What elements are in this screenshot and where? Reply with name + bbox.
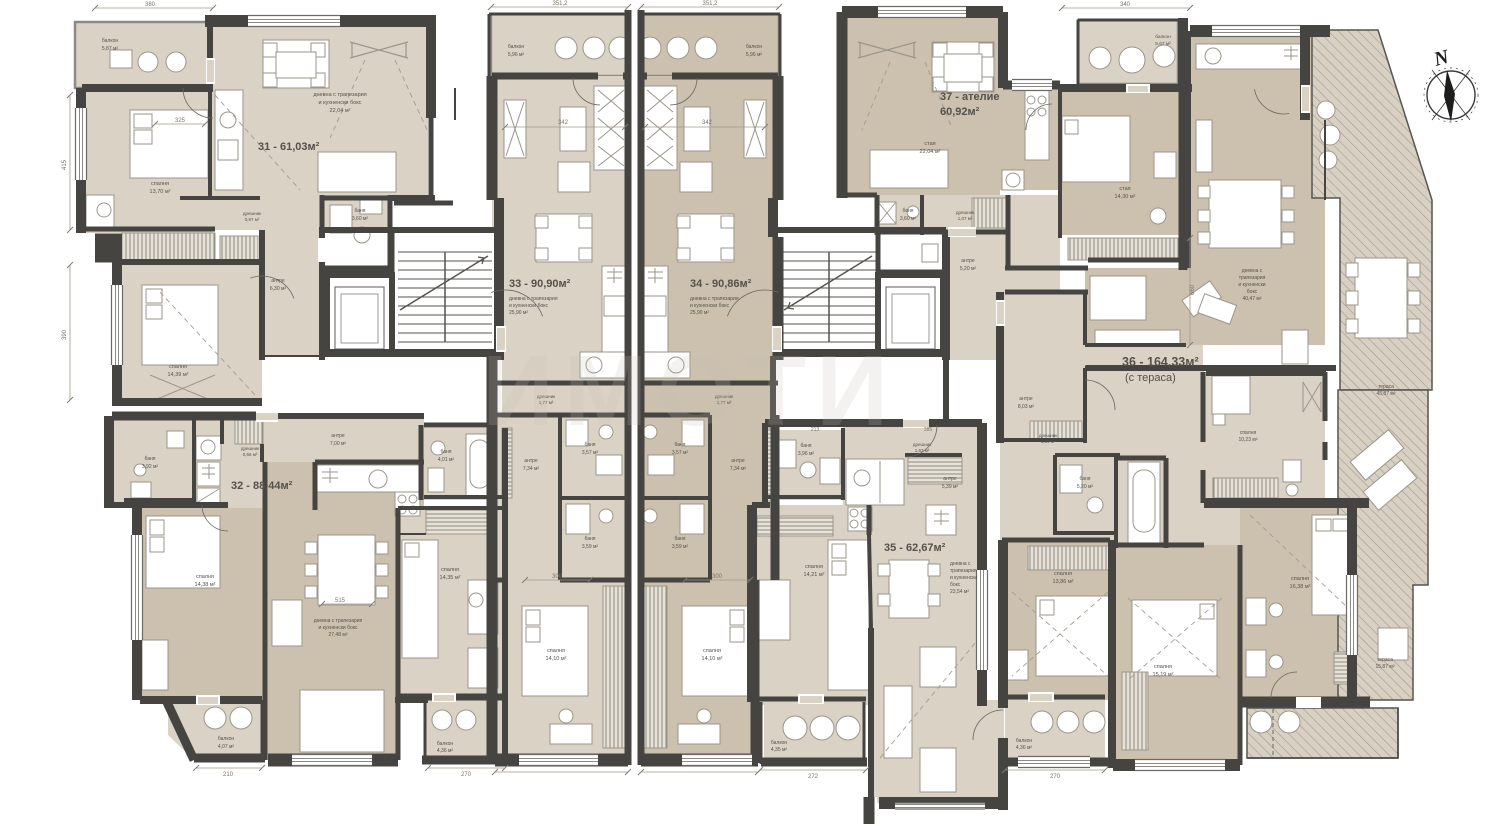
svg-text:60,92м²: 60,92м² [940, 106, 980, 118]
svg-text:ИМОТИ: ИМОТИ [482, 335, 898, 447]
svg-text:дневна с трапезария: дневна с трапезария [690, 296, 739, 302]
svg-text:и кухненски бокс: и кухненски бокс [319, 100, 362, 106]
svg-text:270: 270 [461, 772, 472, 778]
svg-text:3,92 м²: 3,92 м² [142, 464, 159, 470]
svg-text:1,53 м²: 1,53 м² [915, 448, 930, 453]
svg-text:балкон: балкон [771, 740, 787, 746]
svg-text:баня: баня [675, 536, 686, 542]
svg-text:спалня: спалня [805, 564, 823, 570]
svg-text:3,60 м²: 3,60 м² [900, 216, 917, 222]
svg-text:14,39 м²: 14,39 м² [168, 372, 189, 378]
svg-text:5,20 м²: 5,20 м² [960, 266, 977, 272]
svg-text:22,04 м²: 22,04 м² [920, 149, 941, 155]
svg-text:385: 385 [924, 427, 933, 433]
svg-text:272: 272 [808, 774, 819, 780]
svg-text:15,19 м²: 15,19 м² [1153, 672, 1174, 678]
svg-text:и кухненски бокс: и кухненски бокс [690, 303, 729, 309]
svg-text:380: 380 [145, 2, 156, 8]
svg-text:спалня: спалня [151, 181, 169, 187]
svg-text:300: 300 [712, 574, 723, 580]
svg-text:7,00 м²: 7,00 м² [330, 441, 347, 447]
svg-text:45,87 м²: 45,87 м² [1376, 391, 1395, 397]
svg-text:дневна с трапезария: дневна с трапезария [314, 618, 363, 624]
svg-text:6,30 м²: 6,30 м² [270, 286, 287, 292]
svg-text:антре: антре [271, 278, 285, 284]
svg-text:дневна с: дневна с [950, 561, 971, 567]
svg-text:0,97 м²: 0,97 м² [245, 217, 260, 222]
svg-text:40,47 м²: 40,47 м² [1242, 296, 1261, 302]
svg-text:антре: антре [943, 476, 957, 482]
svg-text:15,87 м²: 15,87 м² [1375, 664, 1394, 670]
svg-text:балкон: балкон [218, 736, 234, 742]
svg-text:3,96 м²: 3,96 м² [798, 451, 815, 457]
svg-text:7,34 м²: 7,34 м² [523, 466, 540, 472]
svg-text:дневна с: дневна с [1242, 268, 1263, 274]
svg-text:13,86 м²: 13,86 м² [1053, 579, 1074, 585]
svg-text:антре: антре [731, 458, 745, 464]
svg-text:31 - 61,03м²: 31 - 61,03м² [258, 141, 320, 153]
svg-text:и кухненски: и кухненски [1238, 282, 1265, 288]
svg-text:спалня: спалня [703, 648, 721, 654]
svg-text:351,2: 351,2 [702, 1, 718, 7]
svg-text:14,30 м²: 14,30 м² [1115, 194, 1136, 200]
svg-text:5,87 м²: 5,87 м² [102, 46, 119, 52]
svg-text:балкон: балкон [437, 741, 453, 747]
svg-text:4,07 м²: 4,07 м² [218, 744, 235, 750]
svg-text:5,96 м²: 5,96 м² [746, 52, 763, 58]
svg-text:дрешник: дрешник [241, 446, 259, 451]
svg-text:1,07 м²: 1,07 м² [958, 216, 973, 221]
svg-text:дрешник: дрешник [1039, 433, 1057, 438]
svg-text:14,10 м²: 14,10 м² [546, 656, 567, 662]
svg-text:7,34 м²: 7,34 м² [730, 466, 747, 472]
svg-text:3,57 м²: 3,57 м² [582, 450, 599, 456]
svg-text:и кухненски бокс: и кухненски бокс [319, 625, 358, 631]
svg-text:342: 342 [558, 120, 569, 126]
svg-text:дневна с трапезария: дневна с трапезария [509, 296, 558, 302]
svg-text:660: 660 [1190, 284, 1196, 295]
svg-text:бокс: бокс [950, 582, 961, 588]
svg-text:баня: баня [355, 208, 366, 214]
svg-text:баня: баня [585, 536, 596, 542]
svg-text:(с тераса): (с тераса) [1125, 372, 1176, 384]
svg-text:антре: антре [331, 433, 345, 439]
svg-text:дневна с трапезария: дневна с трапезария [313, 92, 366, 98]
svg-text:0,66 м²: 0,66 м² [243, 452, 258, 457]
svg-text:325: 325 [175, 118, 186, 124]
svg-text:4,36 м²: 4,36 м² [437, 748, 454, 754]
svg-text:балкон: балкон [102, 38, 118, 44]
svg-text:25,90 м²: 25,90 м² [690, 310, 709, 316]
svg-text:5,20 м²: 5,20 м² [1077, 484, 1094, 490]
svg-text:1,26 м²: 1,26 м² [1041, 439, 1056, 444]
svg-text:3,59 м²: 3,59 м² [582, 544, 599, 550]
svg-text:16,38 м²: 16,38 м² [1290, 584, 1311, 590]
svg-text:34 - 90,86м²: 34 - 90,86м² [690, 278, 752, 290]
svg-text:27,48 м²: 27,48 м² [328, 632, 347, 638]
svg-text:балкон: балкон [508, 44, 524, 50]
svg-text:25,90 м²: 25,90 м² [509, 310, 528, 316]
svg-text:270: 270 [1050, 774, 1061, 780]
svg-text:3,59 м²: 3,59 м² [672, 544, 689, 550]
svg-text:баня: баня [145, 456, 156, 462]
svg-text:35 - 62,67м²: 35 - 62,67м² [884, 542, 946, 554]
svg-text:дрешник: дрешник [913, 442, 931, 447]
svg-text:спалня: спалня [196, 574, 214, 580]
svg-text:баня: баня [441, 449, 452, 455]
svg-text:3,57 м²: 3,57 м² [672, 450, 689, 456]
svg-text:4,01 м²: 4,01 м² [438, 457, 455, 463]
svg-text:22,04 м²: 22,04 м² [330, 108, 351, 114]
svg-text:спалня: спалня [1291, 576, 1309, 582]
svg-text:342: 342 [702, 120, 713, 126]
svg-text:4,35 м²: 4,35 м² [771, 747, 788, 753]
svg-text:трапезария: трапезария [1239, 275, 1266, 281]
svg-text:антре: антре [961, 258, 975, 264]
svg-text:14,38 м²: 14,38 м² [195, 582, 216, 588]
svg-text:340: 340 [1120, 2, 1131, 8]
svg-text:37 - ателие: 37 - ателие [940, 91, 1000, 103]
svg-text:и кухненски: и кухненски [950, 575, 977, 581]
svg-text:спалня: спалня [547, 648, 565, 654]
svg-text:спалня: спалня [169, 364, 187, 370]
svg-text:300: 300 [552, 574, 563, 580]
svg-text:тераса: тераса [1378, 384, 1394, 390]
svg-text:спалня: спалня [1154, 664, 1172, 670]
svg-text:351,2: 351,2 [552, 1, 568, 7]
svg-text:балкон: балкон [746, 44, 762, 50]
svg-text:415: 415 [62, 159, 68, 170]
svg-text:баня: баня [1080, 476, 1091, 482]
svg-text:14,21 м²: 14,21 м² [804, 572, 825, 578]
svg-text:13,70 м²: 13,70 м² [150, 189, 171, 195]
svg-text:5,67 м²: 5,67 м² [1155, 41, 1171, 47]
svg-text:10,23 м²: 10,23 м² [1238, 437, 1257, 443]
svg-text:36 - 164,33м²: 36 - 164,33м² [1122, 355, 1199, 369]
svg-text:трапезария: трапезария [950, 568, 977, 574]
svg-text:23,54 м²: 23,54 м² [950, 589, 969, 595]
svg-text:8,03 м²: 8,03 м² [1018, 404, 1035, 410]
svg-text:балкон: балкон [1016, 738, 1032, 744]
svg-text:4,36 м²: 4,36 м² [1016, 745, 1033, 751]
svg-text:14,10 м²: 14,10 м² [702, 656, 723, 662]
svg-text:33 - 90,90м²: 33 - 90,90м² [509, 278, 571, 290]
svg-text:спалня: спалня [1240, 430, 1257, 436]
svg-text:3,60 м²: 3,60 м² [352, 216, 369, 222]
svg-text:и кухненски бокс: и кухненски бокс [509, 303, 548, 309]
svg-text:5,96 м²: 5,96 м² [508, 52, 525, 58]
svg-text:390: 390 [62, 329, 68, 340]
svg-text:бокс: бокс [1247, 289, 1258, 295]
svg-text:антре: антре [1019, 396, 1033, 402]
svg-text:дрешник: дрешник [243, 211, 261, 216]
svg-text:стая: стая [1119, 186, 1130, 192]
svg-text:515: 515 [335, 598, 346, 604]
svg-text:32 - 88,44м²: 32 - 88,44м² [231, 480, 293, 492]
svg-text:балкон: балкон [1155, 34, 1171, 40]
svg-text:спалня: спалня [441, 567, 459, 573]
svg-text:тераса: тераса [1377, 657, 1393, 663]
svg-text:стая: стая [924, 141, 935, 147]
svg-text:баня: баня [903, 208, 914, 214]
svg-text:5,39 м²: 5,39 м² [942, 484, 959, 490]
svg-text:спалня: спалня [1054, 571, 1072, 577]
svg-text:14,35 м²: 14,35 м² [440, 575, 461, 581]
svg-text:антре: антре [524, 458, 538, 464]
svg-text:дрешник: дрешник [956, 210, 974, 215]
svg-text:210: 210 [223, 772, 234, 778]
